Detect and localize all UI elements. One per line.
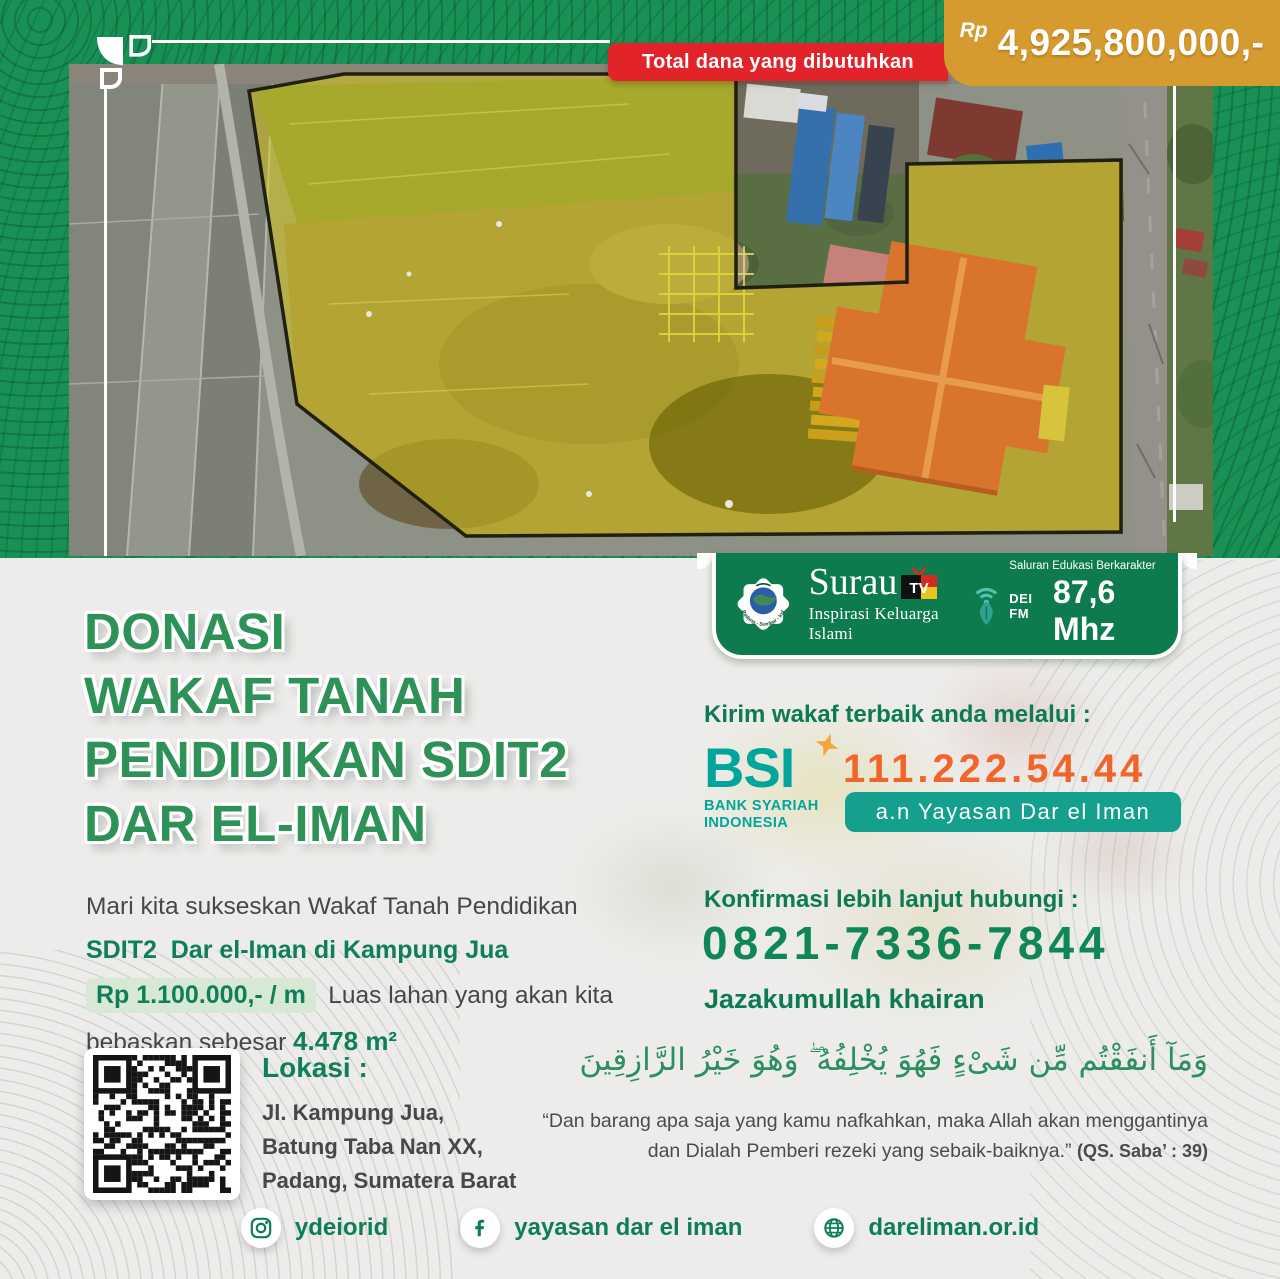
dei-fm-station: DEI FM	[1009, 591, 1047, 621]
instagram-link[interactable]: ydeiorid	[241, 1208, 388, 1248]
after-price-text: Luas lahan yang akan kita	[328, 982, 613, 1009]
amount-value: 4,925,800,000,-	[998, 22, 1265, 64]
account-holder-pill: a.n Yayasan Dar el Iman	[845, 792, 1181, 832]
account-holder: a.n Yayasan Dar el Iman	[876, 799, 1151, 825]
website-url: dareliman.or.id	[868, 1214, 1039, 1242]
bsi-acronym: BSI	[704, 736, 794, 799]
qr-code	[93, 1055, 231, 1193]
intro-text: Mari kita sukseskan Wakaf Tanah Pendidik…	[86, 893, 686, 921]
surau-tv-logo: Surau TV Inspirasi Keluarga Islami	[809, 565, 955, 644]
facebook-icon	[469, 1217, 491, 1239]
address-line: Batung Taba Nan XX,	[262, 1130, 516, 1164]
campaign-description: Mari kita sukseskan Wakaf Tanah Pendidik…	[86, 893, 686, 1057]
verse-reference: (QS. Saba’ : 39)	[1077, 1141, 1208, 1161]
title-line: DAR EL-IMAN	[84, 792, 568, 856]
surau-tv-tagline: Inspirasi Keluarga Islami	[809, 604, 955, 644]
title-line: WAKAF TANAH	[84, 664, 568, 728]
poster-title: DONASI WAKAF TANAH PENDIDIKAN SDIT2 DAR …	[84, 600, 568, 856]
footer-social-bar: ydeiorid yayasan dar el iman dareliman.o…	[0, 1208, 1280, 1248]
location-block: Lokasi : Jl. Kampung Jua, Batung Taba Na…	[262, 1052, 516, 1198]
address-line: Padang, Sumatera Barat	[262, 1164, 516, 1198]
frame-vertical-line-right	[1173, 84, 1176, 522]
contact-phone: 0821-7336-7844	[702, 916, 1110, 970]
dei-fm-tagline: Saluran Edukasi Berkarakter	[1009, 560, 1160, 572]
highlight-text: SDIT2 Dar el-Iman di Kampung Jua	[86, 936, 686, 965]
ribbon-label: Total dana yang dibutuhkan	[642, 51, 914, 74]
total-needed-ribbon: Total dana yang dibutuhkan	[608, 43, 948, 81]
frame-horizontal-line	[152, 40, 610, 43]
donation-poster: Total dana yang dibutuhkan Rp 4,925,800,…	[0, 0, 1280, 1279]
partner-logo-bar: Padang - Sumbar - Indonesia Surau TV Ins…	[712, 553, 1182, 659]
address-line: Jl. Kampung Jua,	[262, 1096, 516, 1130]
bsi-name-line2: INDONESIA	[704, 815, 819, 832]
translation-line2: dan Dialah Pemberi rezeki yang sebaik-ba…	[648, 1140, 1077, 1162]
bsi-star-icon	[815, 733, 839, 757]
location-heading: Lokasi :	[262, 1052, 516, 1084]
title-line: DONASI	[84, 600, 568, 664]
facebook-link[interactable]: yayasan dar el iman	[460, 1208, 742, 1248]
contact-heading: Konfirmasi lebih lanjut hubungi :	[704, 886, 1079, 914]
closing-text: Jazakumullah khairan	[704, 984, 985, 1015]
location-qr-card	[84, 1048, 240, 1200]
instagram-icon	[250, 1217, 272, 1239]
aerial-photo	[69, 64, 1213, 556]
amount-panel: Rp 4,925,800,000,-	[944, 0, 1280, 86]
price-per-meter: Rp 1.100.000,- / m	[86, 978, 316, 1013]
globe-icon	[823, 1217, 845, 1239]
tv-icon: TV	[901, 567, 937, 599]
account-number: 111.222.54.44	[843, 747, 1146, 792]
currency-symbol: Rp	[960, 19, 988, 43]
dei-fm-icon	[971, 577, 1002, 631]
donation-heading: Kirim wakaf terbaik anda melalui :	[704, 701, 1091, 729]
tv-label: TV	[910, 580, 929, 597]
instagram-handle: ydeiorid	[295, 1214, 388, 1242]
frame-vertical-line-left	[104, 86, 107, 556]
quran-verse-arabic: وَمَآ أَنفَقْتُم مِّن شَىْءٍ فَهُوَ يُخْ…	[556, 1038, 1208, 1082]
website-chip	[814, 1208, 854, 1248]
translation-line1: “Dan barang apa saja yang kamu nafkahkan…	[516, 1106, 1208, 1136]
dei-fm-frequency: 87,6 Mhz	[1053, 574, 1160, 648]
dei-fm-logo: Saluran Edukasi Berkarakter DEI FM 87,6 …	[971, 560, 1160, 648]
title-line: PENDIDIKAN SDIT2	[84, 728, 568, 792]
website-link[interactable]: dareliman.or.id	[814, 1208, 1039, 1248]
instagram-chip	[241, 1208, 281, 1248]
bsi-name-line1: BANK SYARIAH	[704, 798, 819, 815]
facebook-chip	[460, 1208, 500, 1248]
verse-translation: “Dan barang apa saja yang kamu nafkahkan…	[516, 1106, 1208, 1166]
facebook-name: yayasan dar el iman	[514, 1214, 742, 1242]
surau-tv-name: Surau	[809, 565, 898, 599]
bsi-logo: BSI BANK SYARIAH INDONESIA	[704, 741, 819, 832]
yayasan-dar-el-iman-logo: Padang - Sumbar - Indonesia	[734, 567, 793, 641]
panel-flare-left	[697, 553, 713, 569]
leaf-logo-icon	[88, 26, 158, 92]
